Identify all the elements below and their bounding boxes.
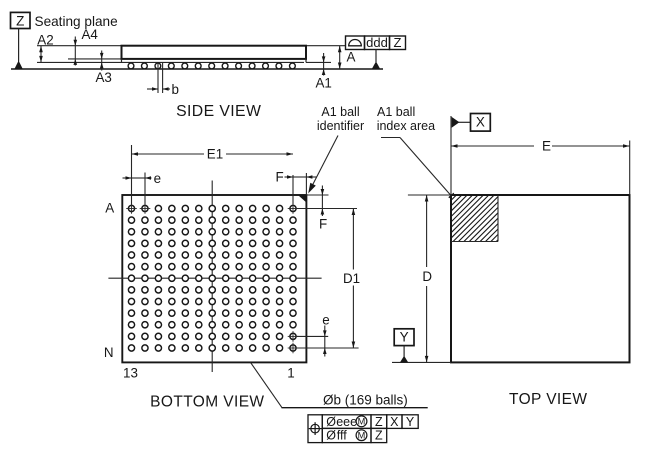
svg-text:A: A: [347, 50, 356, 65]
svg-text:13: 13: [123, 365, 138, 380]
svg-text:Z: Z: [16, 14, 24, 29]
svg-text:Z: Z: [394, 35, 402, 50]
svg-text:F: F: [276, 170, 284, 185]
svg-text:N: N: [104, 345, 114, 360]
svg-text:Y: Y: [406, 415, 415, 429]
svg-text:e: e: [322, 313, 329, 328]
svg-text:Seating plane: Seating plane: [35, 14, 118, 29]
svg-text:Z: Z: [375, 429, 383, 443]
svg-text:E1: E1: [207, 147, 223, 162]
svg-text:A2: A2: [37, 32, 53, 47]
svg-text:M: M: [358, 417, 366, 427]
svg-text:ddd: ddd: [366, 35, 388, 50]
svg-text:1: 1: [287, 365, 294, 380]
svg-text:A3: A3: [96, 70, 112, 85]
svg-text:A1 ball: A1 ball: [377, 105, 415, 119]
svg-text:A1 ball: A1 ball: [321, 105, 359, 119]
svg-text:F: F: [319, 216, 327, 231]
svg-text:D1: D1: [343, 271, 360, 286]
svg-text:E: E: [542, 138, 551, 153]
svg-text:identifier: identifier: [317, 119, 364, 133]
svg-text:D: D: [422, 269, 432, 284]
svg-text:X: X: [476, 115, 485, 130]
svg-text:X: X: [390, 415, 399, 429]
svg-text:BOTTOM VIEW: BOTTOM VIEW: [150, 393, 264, 410]
svg-text:M: M: [358, 431, 366, 441]
svg-text:Y: Y: [400, 330, 409, 345]
svg-text:eee: eee: [336, 415, 357, 429]
svg-text:A: A: [105, 201, 114, 216]
svg-text:SIDE VIEW: SIDE VIEW: [176, 103, 261, 120]
svg-text:A1: A1: [316, 75, 332, 90]
svg-text:b: b: [172, 82, 179, 97]
svg-text:A4: A4: [82, 27, 99, 42]
svg-text:Z: Z: [375, 415, 383, 429]
svg-text:Ø: Ø: [326, 415, 336, 429]
svg-text:Ø: Ø: [326, 429, 336, 443]
svg-text:TOP VIEW: TOP VIEW: [509, 391, 587, 408]
svg-text:fff: fff: [337, 429, 347, 443]
svg-text:index area: index area: [377, 119, 435, 133]
svg-text:e: e: [154, 171, 161, 186]
svg-text:Øb (169 balls): Øb (169 balls): [323, 393, 408, 408]
